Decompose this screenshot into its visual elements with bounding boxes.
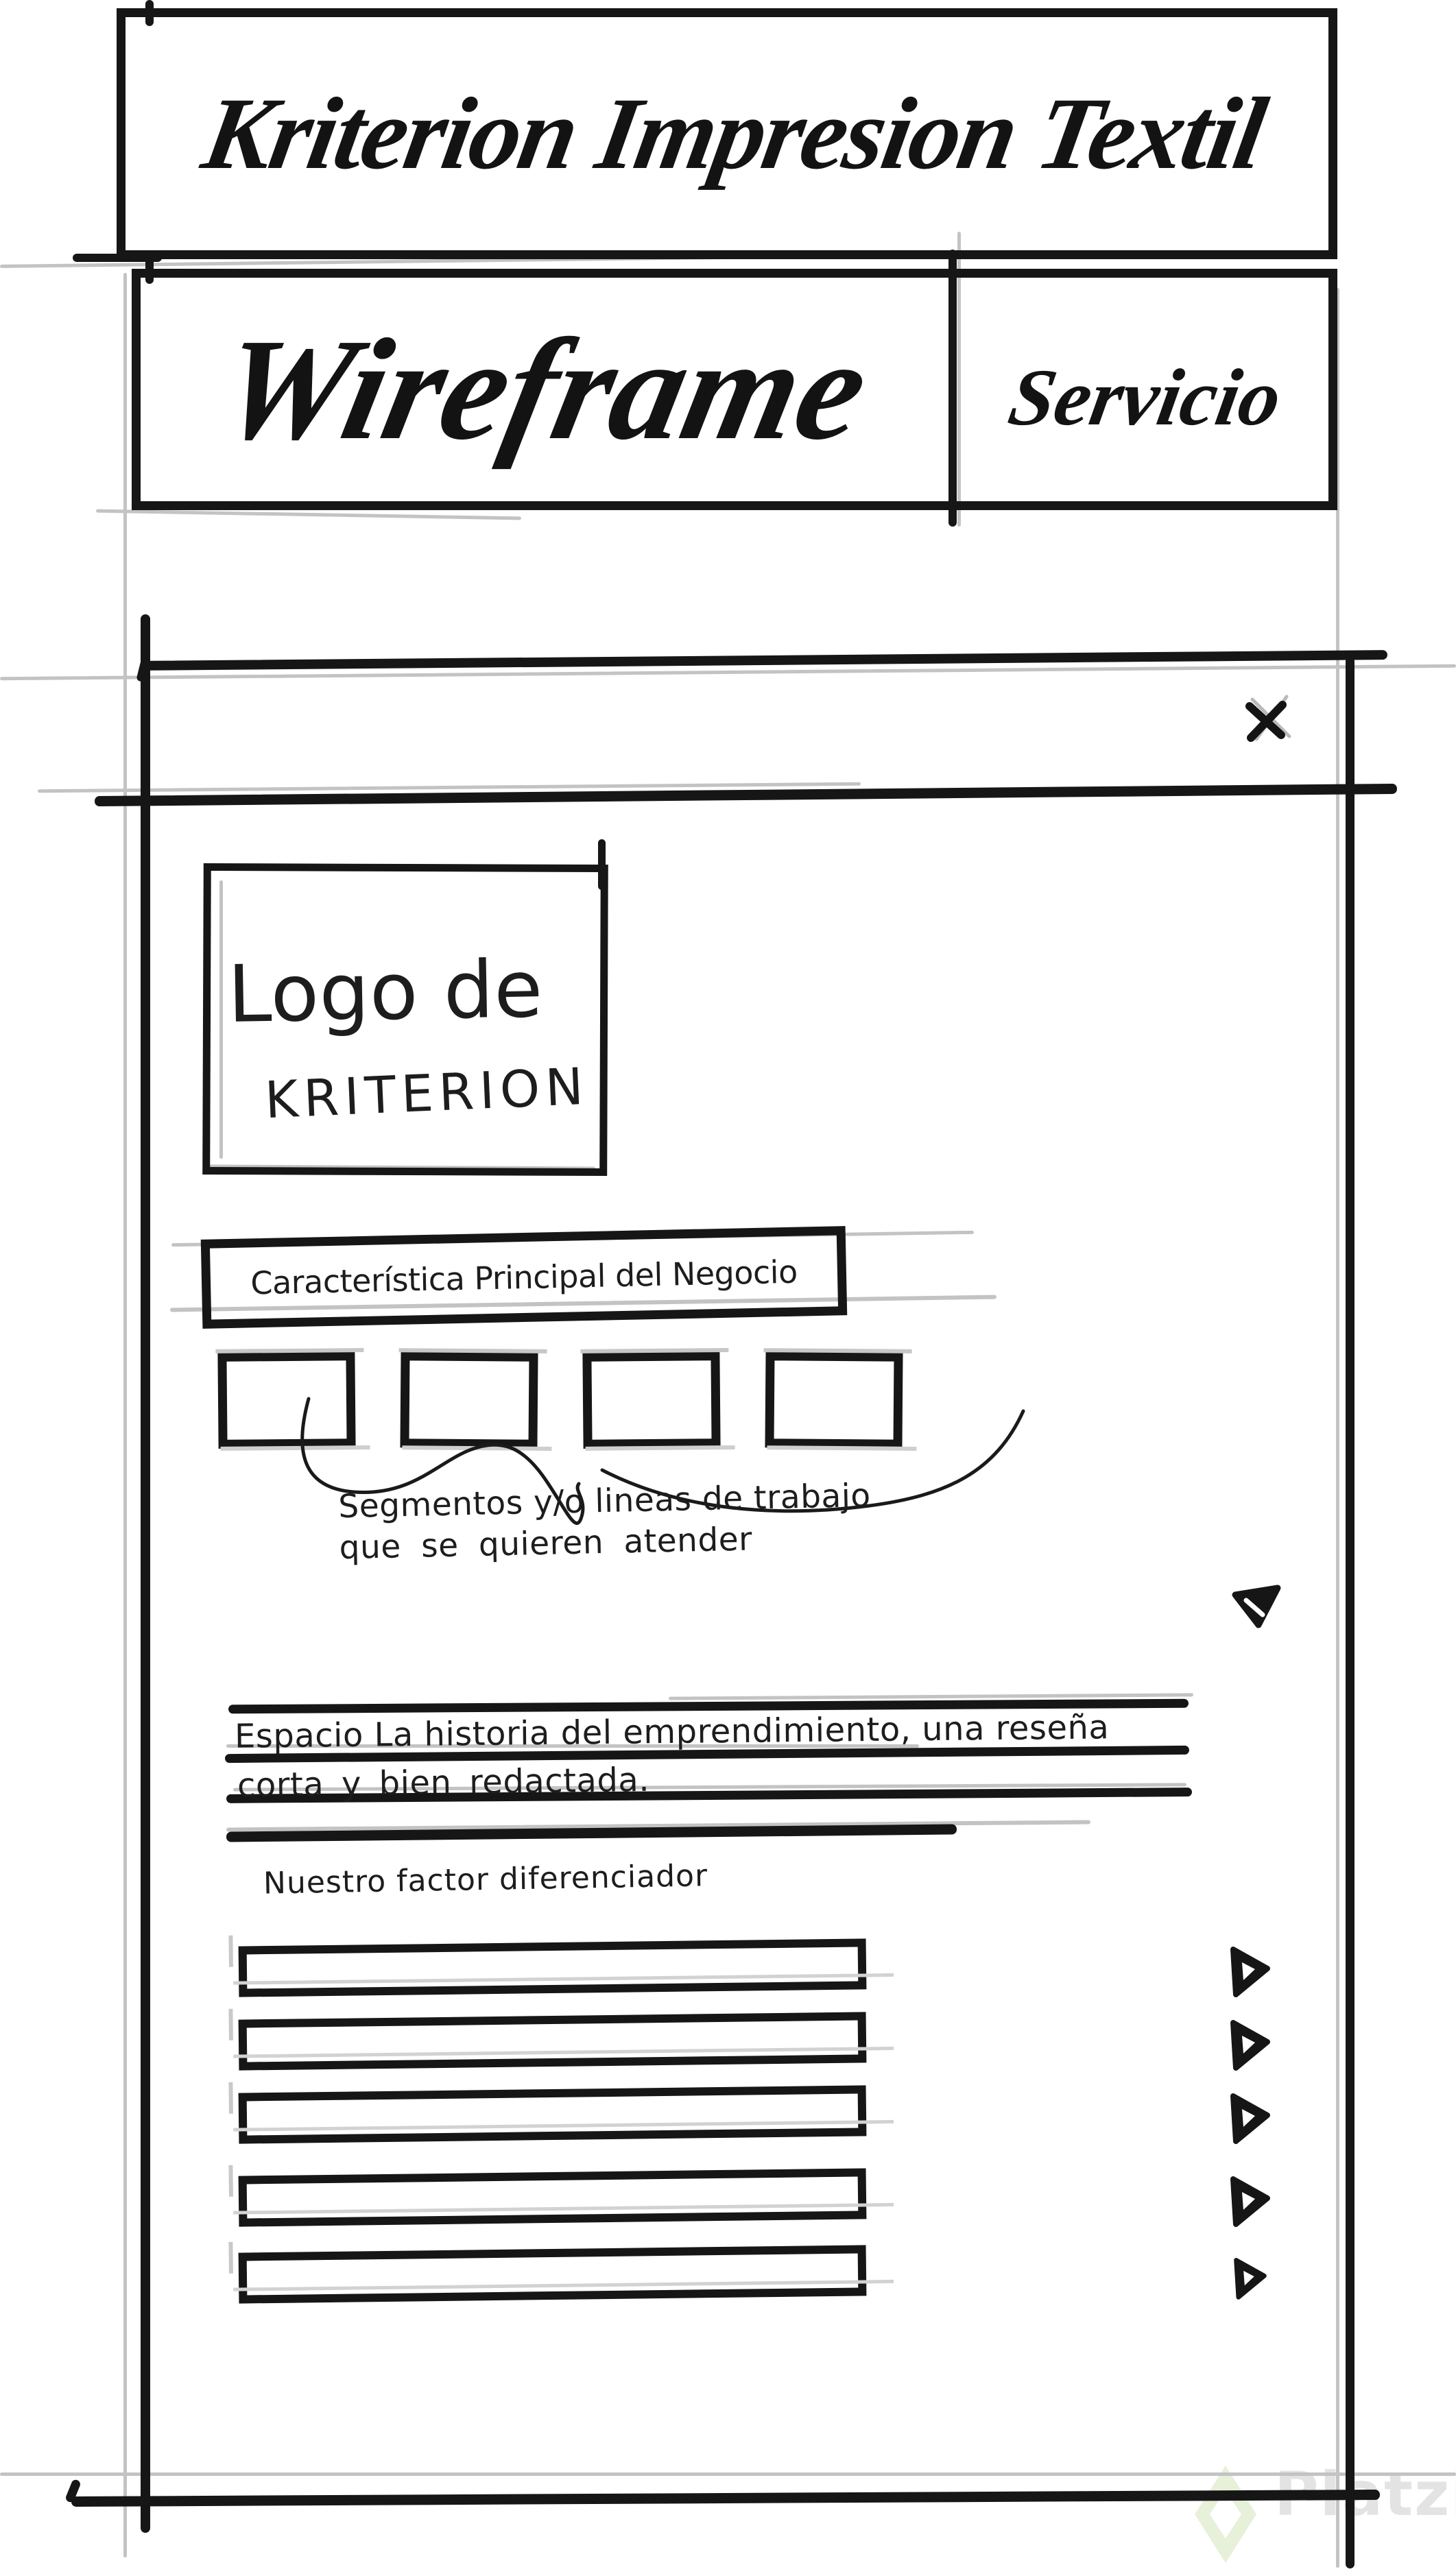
close-button[interactable] — [1239, 691, 1296, 754]
differentiator-item-bar[interactable] — [239, 2245, 867, 2303]
wireframe-label: Wireframe — [116, 273, 971, 506]
modal-right-border — [1346, 657, 1354, 2568]
main-feature-banner[interactable]: Característica Principal del Negocio — [201, 1226, 848, 1329]
play-icon — [1233, 2256, 1268, 2300]
differentiator-item-bar[interactable] — [239, 1938, 867, 1997]
scroll-down-button[interactable] — [1230, 1582, 1285, 1636]
main-feature-banner-label: Característica Principal del Negocio — [250, 1253, 798, 1302]
sketch-guide-line — [1336, 288, 1339, 2568]
differentiator-item-bar[interactable] — [239, 2012, 867, 2070]
page-section-label: Servicio — [943, 302, 1347, 494]
differentiator-play-button[interactable] — [1229, 2019, 1272, 2075]
differentiator-play-button[interactable] — [1229, 2175, 1272, 2231]
story-text-line2: corta y bien redactada. — [237, 1761, 650, 1805]
sketch-guide-line — [123, 273, 127, 2557]
play-icon — [1229, 2092, 1272, 2145]
play-icon — [1229, 2019, 1272, 2072]
sketch-overshoot — [145, 0, 154, 26]
modal-left-border — [141, 614, 150, 2533]
play-icon — [1229, 1945, 1272, 1999]
differentiator-heading: Nuestro factor diferenciador — [263, 1858, 708, 1901]
sketch-guide-line — [0, 2472, 1456, 2476]
differentiator-play-button[interactable] — [1233, 2256, 1268, 2302]
differentiator-play-button[interactable] — [1229, 2092, 1272, 2148]
page-title: Kriterion Impresion Textil — [138, 21, 1330, 247]
sketch-guide-line — [96, 509, 521, 520]
scroll-down-icon — [1230, 1582, 1285, 1633]
segments-annotation: Segmentos y/o lineas de trabajo que se q… — [338, 1476, 872, 1569]
modal-bottom-border — [71, 2490, 1380, 2507]
differentiator-item-bar[interactable] — [239, 2085, 867, 2143]
differentiator-play-button[interactable] — [1229, 1945, 1272, 2001]
close-icon — [1239, 691, 1296, 751]
wireframe-sketch-page: Kriterion Impresion Textil Wireframe Ser… — [0, 0, 1456, 2576]
sketch-overshoot — [73, 254, 162, 262]
differentiator-item-bar[interactable] — [239, 2168, 867, 2226]
logo-text-line1: Logo de — [227, 943, 544, 1041]
play-icon — [1229, 2175, 1272, 2228]
sketch-overshoot — [598, 839, 606, 890]
